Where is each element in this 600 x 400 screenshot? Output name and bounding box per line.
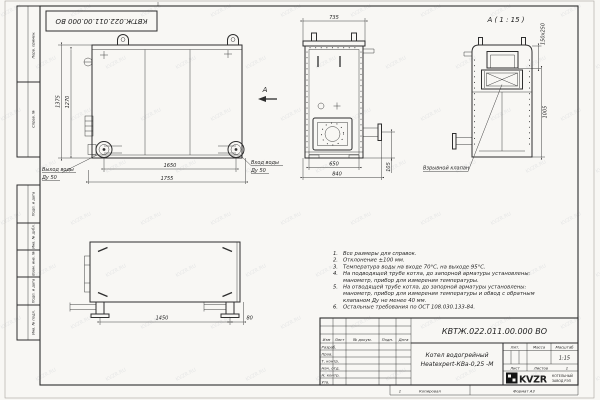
dim-650: 650 [329,162,339,168]
dim-840: 840 [332,172,342,178]
note-num: 1. [333,251,338,257]
margin-label-inv-dubl: Инв. № дубл. [32,224,36,249]
col-izm: Изм [323,337,331,342]
row-razrab: Разраб. [322,345,337,350]
sheets-label: Листов [533,366,549,371]
row-tkontr: Т. контр. [322,359,340,364]
lit-label: Лит. [510,345,520,350]
col-podp: Подп. [382,337,394,342]
margin-label-perv-primen: Перв. примен. [32,32,36,59]
note-text: На отводящей трубе котла, до запорной ар… [343,285,526,291]
dim-1450: 1450 [156,316,169,322]
top-stamp: КВТЖ.022.011.00.000 ВО [46,11,157,31]
dim-150x250: 150х250 [541,23,547,45]
col-data: Дата [398,337,410,342]
mass-label: Масса [533,345,546,350]
org-line-2: ЗАВОД РЭП [552,379,572,383]
note-text: Остальные требования по ОСТ 108.030.133-… [343,305,475,311]
kvzr-logo: KVZR КОТЕЛЬНЫЙ ЗАВОД РЭП [506,373,574,386]
view-arrow-letter: А [262,86,268,94]
inlet-dn: Ду 50 [250,168,266,174]
format-label: Формат А3 [513,389,535,394]
zone-mark: 1 [399,389,401,394]
note-num: 5. [333,285,338,291]
margin-label-vzam-inv: Взам. инв. № [32,251,36,276]
dim-735: 735 [329,15,339,21]
row-nachotd: Нач. отд. [322,366,340,371]
col-docnum: № докум. [352,337,372,342]
note-text: Температура воды на входе 70°С, на выход… [343,264,486,270]
dim-80: 80 [247,316,253,322]
front-view: 1375 1270 1650 1755 Выход воды Ду 50 Вхо… [41,35,283,185]
note-text: клапаном Ду не менее 40 мм. [343,298,426,304]
side-view: 735 650 840 105 [303,15,395,180]
detail-view-title: А ( 1 : 15 ) [486,16,524,24]
dim-1650: 1650 [164,163,177,169]
scale-label: Масштаб [555,345,574,350]
dim-1005: 1005 [543,106,549,119]
outlet-label: Выход воды [42,167,74,173]
dim-1755: 1755 [161,176,174,182]
margin-label-inv-podl: Инв. № подл. [32,310,36,335]
view-arrow-icon [258,96,266,102]
valve-label: Взрывной клапан [423,166,470,172]
note-text: На подводящей трубе котла, до запорной а… [343,271,531,277]
inlet-label: Вход воды [251,160,279,166]
copied-label: Копировал [419,389,441,394]
plan-view: 1450 80 [70,242,253,325]
note-num: 2. [333,258,338,264]
doc-number: КВТЖ.022.011.00.000 ВО [442,327,547,336]
detail-view-a: А ( 1 : 15 ) 150х250 1005 Вз [423,16,549,172]
col-list: Лист [334,337,345,342]
margin-label-podp-data-1: Подп. и дата [32,192,36,216]
scale-value: 1:15 [559,356,570,362]
top-stamp-doc-number: КВТЖ.022.011.00.000 ВО [55,17,148,25]
outlet-dn: Ду 50 [41,175,57,181]
note-text: манометр, прибор для измерения температу… [343,291,535,297]
drawing-sheet: KVZR.RUKVZR.RUKVZR.RUKVZR.RUKVZR.RUKVZR.… [0,0,600,400]
row-prov: Пров. [322,352,333,357]
product-name-2: Heatexpert-КВа-0,25 -М [421,361,495,368]
frame: Перв. примен. Справ. № Подп. и дата Инв.… [5,1,594,398]
margin-label-sprav-no: Справ. № [32,110,36,128]
dim-1375: 1375 [56,95,62,108]
note-num: 3. [333,264,338,270]
sheets-value: 1 [566,366,568,371]
org-line-1: КОТЕЛЬНЫЙ [552,373,574,378]
sheet-label: Лист [509,366,520,371]
note-text: манометр, прибор для измерения температу… [343,278,479,284]
note-num: 6. [333,305,338,311]
drawing-canvas: Перв. примен. Справ. № Подп. и дата Инв.… [0,0,600,400]
product-name-1: Котел водогрейный [426,352,489,359]
title-block: Изм Лист № докум. Подп. Дата Разраб. Про… [320,318,578,395]
dim-1270: 1270 [65,96,71,109]
note-text: Отклонение ±100 мм. [343,258,405,264]
row-utv: Утв. [322,380,330,385]
margin-label-podp-data-2: Подп. и дата [32,279,36,303]
note-text: Все размеры для справок. [343,251,417,257]
note-num: 4. [333,271,338,277]
logo-text: KVZR [519,375,548,386]
row-nkontr: Н. контр. [322,373,340,378]
dim-105: 105 [386,162,392,172]
notes: 1. Все размеры для справок. 2. Отклонени… [333,251,535,311]
